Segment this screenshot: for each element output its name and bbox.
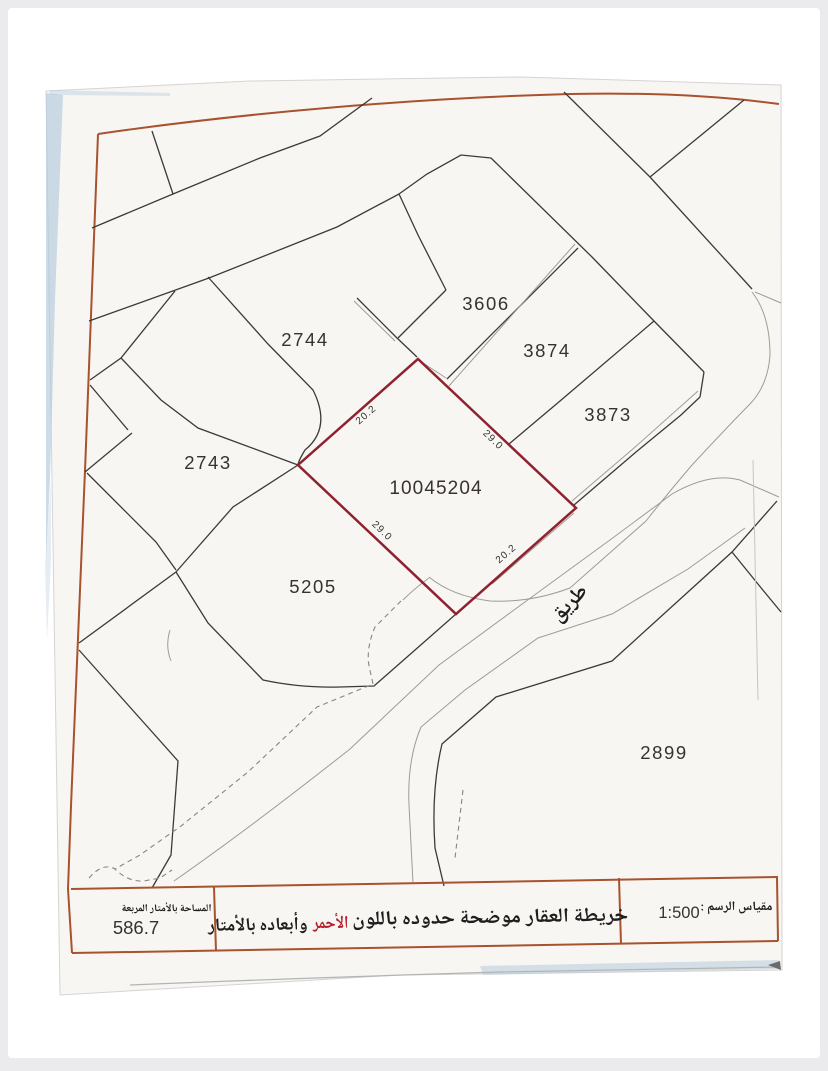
svg-text:5205: 5205	[289, 576, 337, 597]
svg-text:586.7: 586.7	[113, 917, 159, 938]
svg-text:3874: 3874	[523, 340, 571, 361]
svg-text:3873: 3873	[584, 404, 632, 425]
svg-text:1:500: 1:500	[658, 904, 699, 922]
svg-text:2744: 2744	[281, 329, 329, 350]
svg-text:3606: 3606	[462, 293, 510, 314]
svg-text:2899: 2899	[640, 742, 688, 763]
svg-text:10045204: 10045204	[389, 478, 482, 499]
svg-text:2743: 2743	[184, 452, 232, 473]
